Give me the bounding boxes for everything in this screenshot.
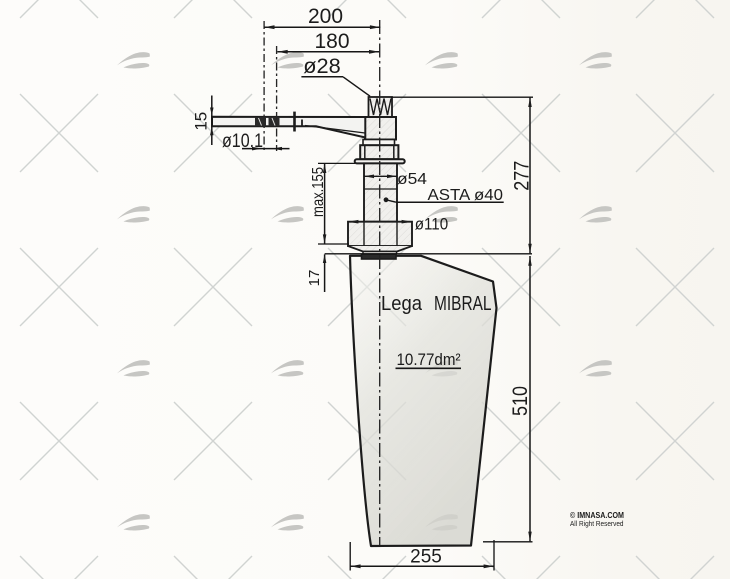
svg-text:510: 510 [509,386,532,416]
svg-text:277: 277 [511,161,534,191]
svg-text:15: 15 [192,112,211,131]
svg-text:ø110: ø110 [415,215,449,234]
svg-text:ø28: ø28 [303,55,341,78]
svg-text:17: 17 [306,270,323,287]
svg-text:ø10.1: ø10.1 [222,131,263,152]
svg-text:max.155: max.155 [310,167,327,217]
svg-text:ASTA ø40: ASTA ø40 [428,187,504,204]
svg-text:All Right Reserved: All Right Reserved [570,519,624,528]
svg-text:ø54: ø54 [397,171,427,188]
svg-text:255: 255 [410,547,442,568]
svg-text:200: 200 [308,5,343,28]
svg-text:10.77dm²: 10.77dm² [397,350,461,369]
svg-text:MIBRAL: MIBRAL [434,293,492,315]
svg-text:180: 180 [314,30,349,53]
svg-text:Lega: Lega [381,293,423,315]
